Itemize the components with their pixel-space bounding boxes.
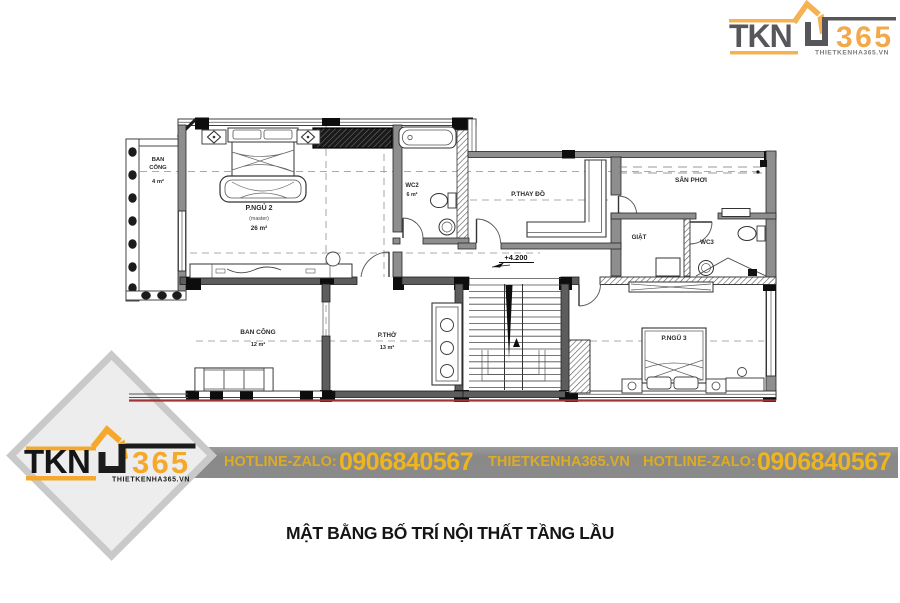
svg-text:WC3: WC3 — [700, 239, 714, 246]
svg-text:BAN: BAN — [152, 157, 165, 163]
svg-text:26 m²: 26 m² — [251, 225, 267, 232]
svg-text:13 m²: 13 m² — [380, 344, 395, 351]
svg-text:TKN: TKN — [729, 18, 792, 54]
svg-text:6 m²: 6 m² — [407, 192, 418, 198]
svg-text:12 m²: 12 m² — [251, 341, 266, 348]
svg-text:BAN CÔNG: BAN CÔNG — [240, 327, 275, 336]
svg-text:P.THAY ĐỒ: P.THAY ĐỒ — [511, 188, 545, 198]
svg-text:WC2: WC2 — [405, 183, 419, 189]
svg-text:SÂN PHƠI: SÂN PHƠI — [675, 175, 707, 184]
svg-text:CÔNG: CÔNG — [149, 163, 167, 171]
svg-text:THIETKENHA365.VN: THIETKENHA365.VN — [815, 50, 889, 57]
svg-text:(master): (master) — [249, 216, 269, 222]
svg-text:P.THỜ: P.THỜ — [378, 331, 397, 339]
svg-text:+4.200: +4.200 — [504, 253, 527, 262]
svg-text:P.NGỦ 3: P.NGỦ 3 — [661, 333, 687, 342]
svg-text:GIẶT: GIẶT — [632, 234, 647, 241]
svg-text:4 m²: 4 m² — [152, 178, 164, 185]
svg-text:P.NGỦ 2: P.NGỦ 2 — [245, 203, 272, 212]
